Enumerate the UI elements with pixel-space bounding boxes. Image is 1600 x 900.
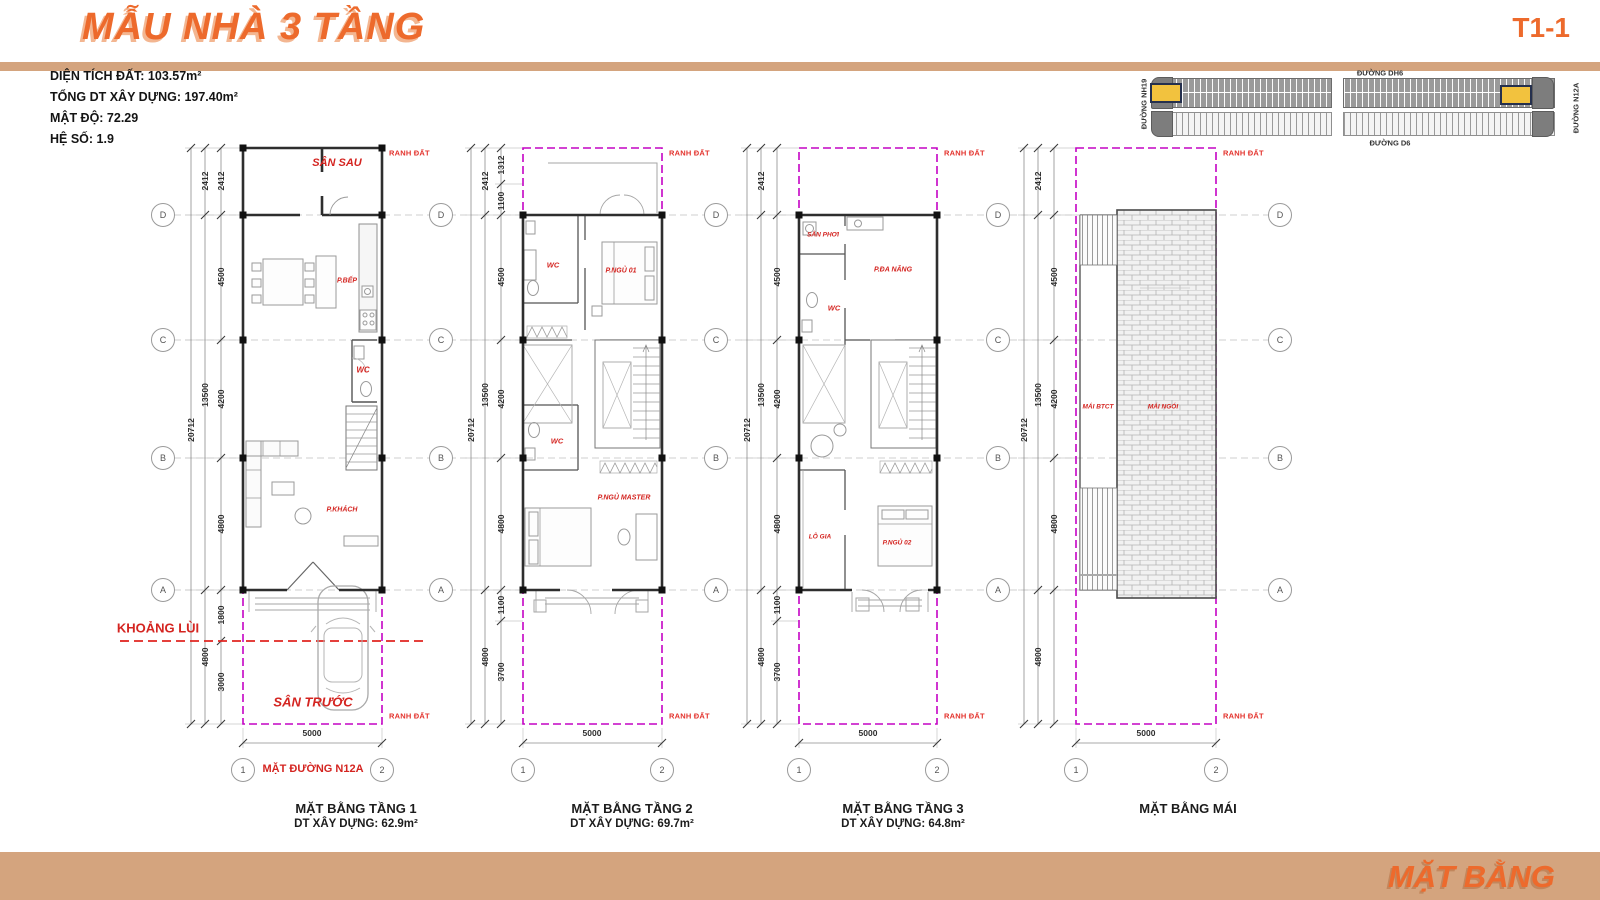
- dim-label: 4500: [772, 268, 782, 287]
- plan-3-caption: MẶT BẰNG TẦNG 3: [842, 801, 963, 816]
- dim-label: 20712: [742, 418, 752, 442]
- drawing-sheet: MẪU NHÀ 3 TẦNG T1-1 DIỆN TÍCH ĐẤT: 103.5…: [0, 0, 1600, 900]
- room-label-front-yard: SÂN TRƯỚC: [273, 695, 352, 710]
- boundary-label: RANH ĐẤT: [669, 149, 710, 158]
- plan-2-caption: MẶT BẰNG TẦNG 2: [571, 801, 692, 816]
- grid-circle-b: B: [704, 446, 728, 470]
- dim-label: 4200: [1049, 390, 1059, 409]
- room-label-wc: WC: [828, 304, 841, 313]
- room-label-tile-roof: MÁI NGÓI: [1148, 404, 1178, 411]
- setback-label: KHOẢNG LÙI: [117, 621, 199, 636]
- boundary-label: RANH ĐẤT: [389, 712, 430, 721]
- grid-circle-a: A: [704, 578, 728, 602]
- dim-label: 1100: [772, 596, 782, 614]
- dim-label: 2412: [216, 172, 226, 191]
- footer-title: MẶT BẰNG: [1388, 859, 1555, 895]
- dim-label: 4800: [480, 648, 490, 667]
- footer-band: [0, 852, 1600, 900]
- grid-circle-d: D: [986, 203, 1010, 227]
- axis-circle-2: 2: [370, 758, 394, 782]
- room-label-concrete-roof: MÁI BTCT: [1082, 404, 1113, 411]
- axis-circle-1: 1: [511, 758, 535, 782]
- boundary-label: RANH ĐẤT: [669, 712, 710, 721]
- dim-label: 5000: [583, 728, 602, 738]
- dim-label: 13500: [1033, 383, 1043, 407]
- street-label: MẶT ĐƯỜNG N12A: [262, 763, 363, 775]
- room-label-laundry: SÂN PHƠI: [807, 232, 839, 239]
- boundary-label: RANH ĐẤT: [944, 712, 985, 721]
- grid-circle-c: C: [986, 328, 1010, 352]
- room-label-loggia: LÔ GIA: [809, 534, 831, 541]
- axis-circle-1: 1: [787, 758, 811, 782]
- dim-label: 4800: [216, 515, 226, 534]
- grid-circle-b: B: [429, 446, 453, 470]
- dim-label: 3700: [772, 663, 782, 682]
- dim-label: 4800: [496, 515, 506, 534]
- axis-circle-2: 2: [650, 758, 674, 782]
- grid-circle-b: B: [986, 446, 1010, 470]
- dim-label: 1100: [496, 192, 506, 210]
- room-label-master: P.NGỦ MASTER: [598, 495, 651, 502]
- dim-label: 4200: [772, 390, 782, 409]
- dim-label: 4800: [1049, 515, 1059, 534]
- dim-label: 5000: [859, 728, 878, 738]
- dim-label: 1800: [216, 606, 226, 625]
- dim-label: 20712: [1019, 418, 1029, 442]
- room-label-kitchen: P.BẾP: [337, 278, 357, 285]
- grid-circle-a: A: [151, 578, 175, 602]
- room-label-bed2: P.NGỦ 02: [883, 540, 912, 547]
- plan-4-caption: MẶT BẰNG MÁI: [1139, 801, 1237, 816]
- grid-circle-c: C: [151, 328, 175, 352]
- grid-circle-a: A: [986, 578, 1010, 602]
- dim-label: 1312: [496, 156, 506, 175]
- plan-1-caption: MẶT BẰNG TẦNG 1: [295, 801, 416, 816]
- dim-label: 3700: [496, 663, 506, 682]
- dim-label: 4800: [200, 648, 210, 667]
- axis-circle-1: 1: [1064, 758, 1088, 782]
- grid-circle-a: A: [1268, 578, 1292, 602]
- plan-3-drawing: [796, 212, 941, 613]
- plan-2-drawing: [520, 163, 666, 614]
- boundary-label: RANH ĐẤT: [1223, 712, 1264, 721]
- dim-label: 2412: [756, 172, 766, 191]
- grid-circle-b: B: [151, 446, 175, 470]
- grid-circle-c: C: [704, 328, 728, 352]
- plan-3-area: DT XÂY DỰNG: 64.8m²: [841, 818, 965, 830]
- grid-circle-d: D: [704, 203, 728, 227]
- dim-label: 4800: [1033, 648, 1043, 667]
- grid-circle-d: D: [1268, 203, 1292, 227]
- grid-circle-a: A: [429, 578, 453, 602]
- room-label-bed1: P.NGỦ 01: [606, 268, 637, 275]
- boundary-label: RANH ĐẤT: [389, 149, 430, 158]
- axis-circle-1: 1: [231, 758, 255, 782]
- boundary-label: RANH ĐẤT: [944, 149, 985, 158]
- dim-label: 3000: [216, 673, 226, 692]
- boundary-label: RANH ĐẤT: [1223, 149, 1264, 158]
- dim-label: 4200: [216, 390, 226, 409]
- room-label-back-yard: SÂN SAU: [312, 157, 362, 169]
- room-label-wc: WC: [356, 366, 369, 375]
- dim-label: 2412: [200, 172, 210, 191]
- dim-label: 4800: [772, 515, 782, 534]
- dim-label: 4500: [496, 268, 506, 287]
- room-label-multi: P.ĐA NĂNG: [874, 267, 912, 274]
- dim-label: 5000: [303, 728, 322, 738]
- dim-label: 20712: [466, 418, 476, 442]
- dim-label: 4200: [496, 390, 506, 409]
- plan-1-area: DT XÂY DỰNG: 62.9m²: [294, 818, 418, 830]
- plan-2-area: DT XÂY DỰNG: 69.7m²: [570, 818, 694, 830]
- grid-circle-d: D: [151, 203, 175, 227]
- dim-label: 4500: [1049, 268, 1059, 287]
- dim-label: 2412: [1033, 172, 1043, 191]
- grid-circle-c: C: [429, 328, 453, 352]
- room-label-living: P.KHÁCH: [327, 507, 358, 514]
- dim-label: 4800: [756, 648, 766, 667]
- dim-label: 4500: [216, 268, 226, 287]
- grid-circle-c: C: [1268, 328, 1292, 352]
- axis-circle-2: 2: [1204, 758, 1228, 782]
- grid-circle-d: D: [429, 203, 453, 227]
- dim-label: 13500: [480, 383, 490, 407]
- room-label-wc1: WC: [547, 261, 560, 270]
- plot-boundaries: [243, 148, 1216, 724]
- dim-label: 13500: [200, 383, 210, 407]
- axis-circle-2: 2: [925, 758, 949, 782]
- dim-label: 2412: [480, 172, 490, 191]
- dim-label: 13500: [756, 383, 766, 407]
- dim-label: 5000: [1137, 728, 1156, 738]
- dim-label: 20712: [186, 418, 196, 442]
- plan-1-drawing: [240, 145, 386, 711]
- dim-label: 1100: [496, 596, 506, 614]
- room-label-wc2: WC: [551, 437, 564, 446]
- grid-circle-b: B: [1268, 446, 1292, 470]
